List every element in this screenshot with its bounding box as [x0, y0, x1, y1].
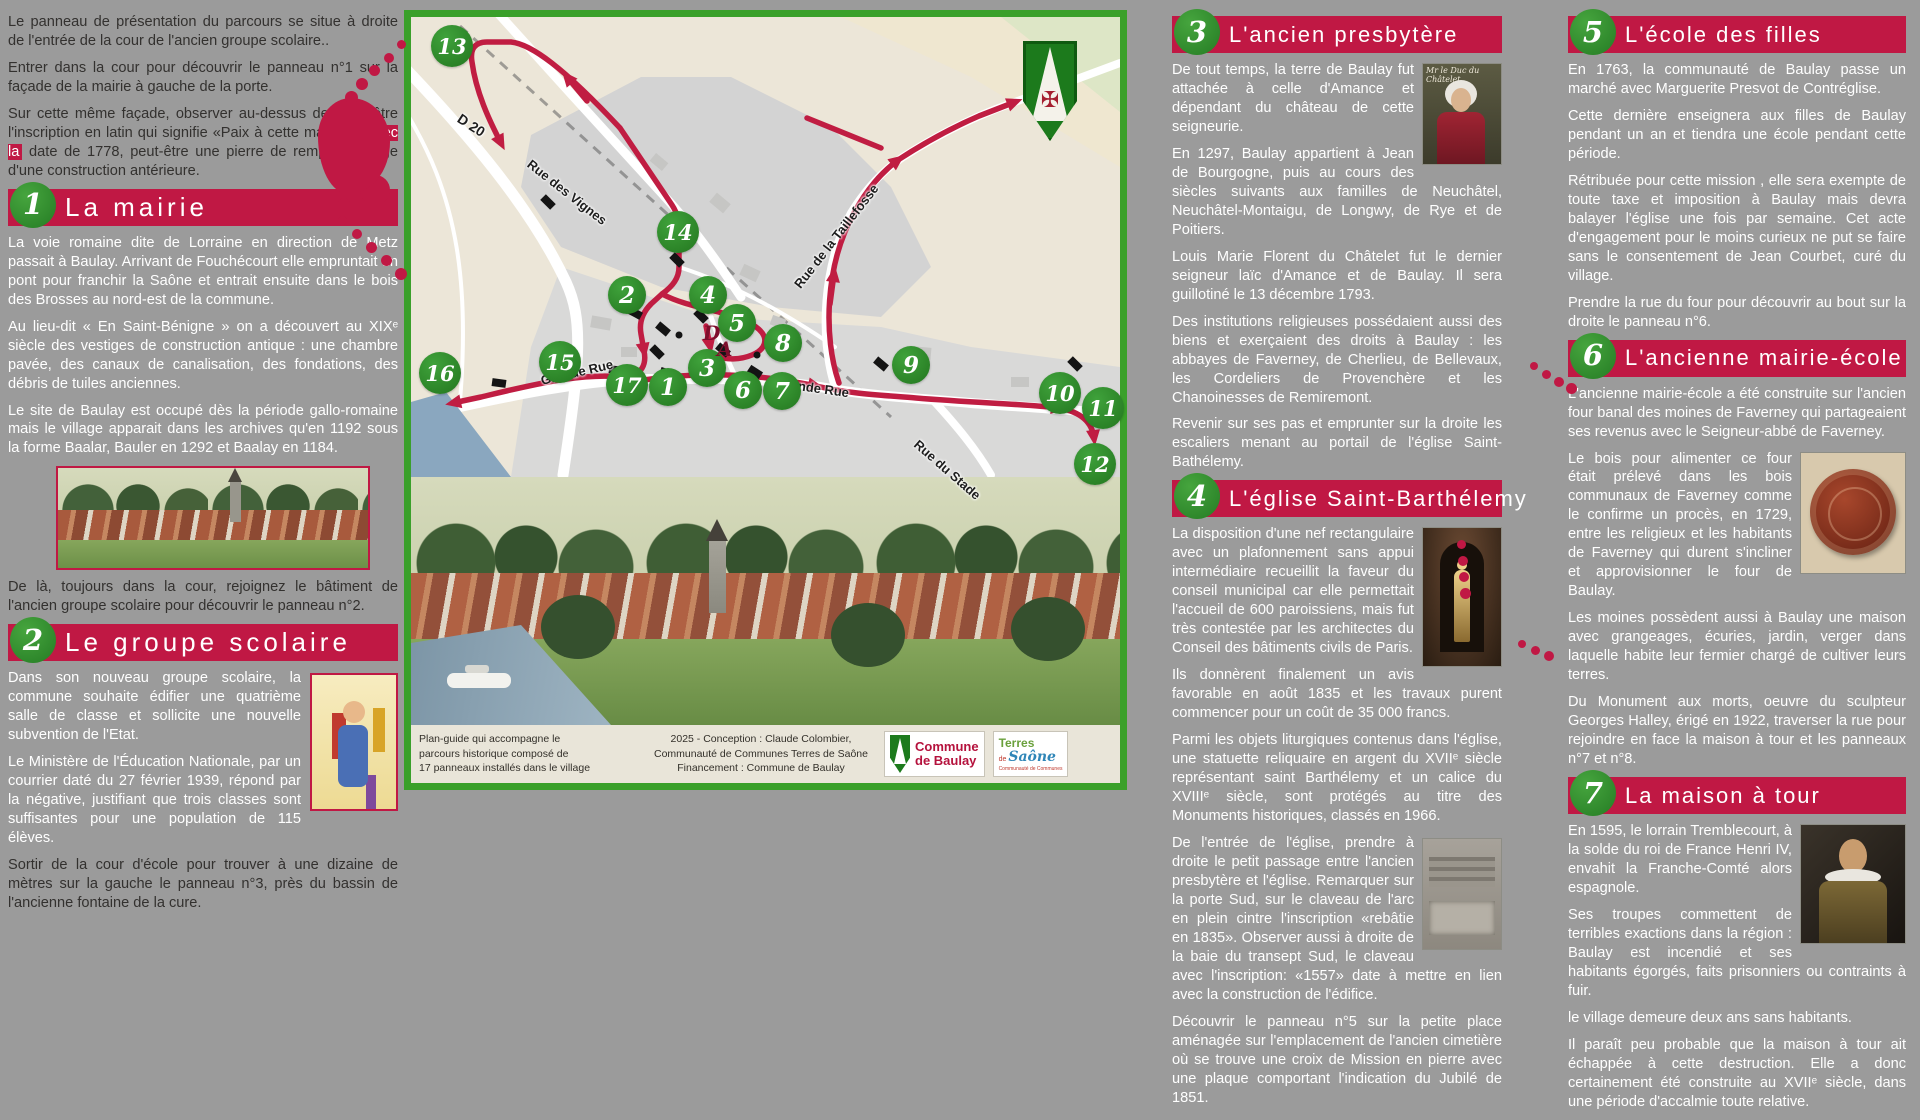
boat-art	[447, 673, 511, 688]
middle-right-column: 3 L'ancien presbytère Mr le Duc du Châte…	[1172, 0, 1502, 1115]
plan-guide-caption: Plan-guide qui accompagne le parcours hi…	[419, 732, 634, 776]
leader-dot	[338, 216, 347, 225]
direction-paragraph: De là, toujours dans la cour, rejoignez …	[8, 578, 398, 616]
leader-dot	[1566, 383, 1577, 394]
commune-shield-icon	[890, 735, 910, 773]
rooftops-art	[58, 510, 368, 544]
panel7-number-badge: 7	[1570, 770, 1616, 816]
panel3-number-badge: 3	[1174, 9, 1220, 55]
panel3-paragraph: Des institutions religieuses possédaient…	[1172, 313, 1502, 408]
leader-dot	[1542, 370, 1551, 379]
leader-dot	[369, 65, 380, 76]
seal-art	[1810, 469, 1896, 555]
panel6-paragraph: L'ancienne mairie-école a été construite…	[1568, 385, 1906, 442]
panel1-title: La mairie	[65, 192, 208, 223]
panel5-number-badge: 5	[1570, 9, 1616, 55]
leader-dot	[384, 53, 394, 63]
panel5-paragraph: Cette dernière enseignera aux filles de …	[1568, 107, 1906, 164]
caption-line: parcours historique composé de	[419, 747, 634, 762]
arrivee-marker: A	[717, 339, 733, 359]
panel5-paragraph: En 1763, la communauté de Baulay passe u…	[1568, 61, 1906, 99]
foreground-tree-art	[831, 603, 905, 667]
panel5-paragraph: Prendre la rue du four pour découvrir au…	[1568, 294, 1906, 332]
terres-de-saone-logo: Terres deSaône Communauté de Communes	[993, 731, 1069, 777]
church-tower-art	[709, 539, 726, 613]
portrait-art	[1437, 112, 1485, 164]
panel6-paragraph: Les moines possèdent aussi à Baulay une …	[1568, 609, 1906, 685]
church-tower-art	[230, 480, 241, 522]
panel4-paragraph: Découvrir le panneau n°5 sur la petite p…	[1172, 1013, 1502, 1108]
panel1-paragraph: La voie romaine dite de Lorraine en dire…	[8, 234, 398, 310]
panel1-paragraph: Le site de Baulay est occupé dès la péri…	[8, 402, 398, 459]
panel4-number-badge: 4	[1174, 473, 1220, 519]
logo-text: Communauté de Communes	[999, 767, 1063, 772]
panel5-title: L'école des filles	[1625, 22, 1822, 48]
map-drawing	[411, 17, 1120, 477]
map-marker-15: 15	[539, 341, 581, 383]
panel7-header: 7 La maison à tour	[1568, 777, 1906, 814]
leader-dot	[338, 198, 350, 210]
caption-line: 17 panneaux installés dans le village	[419, 761, 634, 776]
leader-dot	[345, 91, 358, 104]
panel7-paragraph: le village demeure deux ans sans habitan…	[1568, 1009, 1906, 1028]
intro-paragraph: Le panneau de présentation du parcours s…	[8, 13, 398, 51]
leader-dot	[1544, 651, 1554, 661]
panel5-header: 5 L'école des filles	[1568, 16, 1906, 53]
leader-dot	[1459, 572, 1469, 582]
panel3-title: L'ancien presbytère	[1229, 22, 1458, 48]
direction-paragraph: Sortir de la cour d'école pour trouver à…	[8, 856, 398, 913]
leader-dot	[1554, 377, 1564, 387]
intro-paragraph: Entrer dans la cour pour découvrir le pa…	[8, 59, 398, 97]
leader-dot	[1530, 362, 1538, 370]
panel1-number-badge: 1	[10, 182, 56, 228]
map-marker-1: 1	[649, 368, 687, 406]
leader-dot	[1531, 646, 1540, 655]
map-marker-16: 16	[419, 352, 461, 394]
village-photo	[56, 466, 370, 570]
map-marker-11: 11	[1082, 387, 1124, 429]
leader-dot	[1518, 640, 1526, 648]
map-marker-2: 2	[608, 276, 646, 314]
credit-line: Financement : Commune de Baulay	[646, 761, 876, 776]
map-panel: D 20 Rue des Vignes Rue de la Taillefoss…	[404, 10, 1127, 790]
panel2-title: Le groupe scolaire	[65, 627, 351, 658]
credit-line: Communauté de Communes Terres de Saône	[646, 747, 876, 762]
map-marker-10: 10	[1039, 372, 1081, 414]
map-marker-13: 13	[431, 25, 473, 67]
leader-dot	[356, 78, 368, 90]
tourist-panel-page: Le panneau de présentation du parcours s…	[0, 0, 1920, 806]
panel3-paragraph: Revenir sur ses pas et emprunter sur la …	[1172, 415, 1502, 472]
leader-dot	[352, 229, 362, 239]
commune-de-baulay-logo: Commune de Baulay	[884, 731, 985, 777]
map-marker-7: 7	[763, 372, 801, 410]
credits-caption: 2025 - Conception : Claude Colombier, Co…	[646, 732, 876, 776]
logo-text: de	[999, 756, 1007, 763]
map-marker-17: 17	[606, 364, 648, 406]
panel4-header: 4 L'église Saint-Barthélemy	[1172, 480, 1502, 517]
map-marker-9: 9	[892, 346, 930, 384]
portrait-art	[1839, 839, 1867, 873]
henri-iv-portrait	[1800, 824, 1906, 944]
leader-dot	[1460, 588, 1471, 599]
duc-du-chatelet-portrait: Mr le Duc du Châtelet	[1422, 63, 1502, 165]
panel6-header: 6 L'ancienne mairie-école	[1568, 340, 1906, 377]
map-marker-12: 12	[1074, 443, 1116, 485]
logo-text: Terres	[999, 737, 1035, 749]
map-marker-6: 6	[724, 371, 762, 409]
leader-dot	[381, 255, 392, 266]
panel2-header: 2 Le groupe scolaire	[8, 624, 398, 661]
panel3-header: 3 L'ancien presbytère	[1172, 16, 1502, 53]
map-marker-4: 4	[689, 276, 727, 314]
portrait-art	[1819, 881, 1887, 943]
caption-line: Plan-guide qui accompagne le	[419, 732, 634, 747]
map-marker-14: 14	[657, 211, 699, 253]
panel6-paragraph: Du Monument aux morts, oeuvre du sculpte…	[1568, 693, 1906, 769]
panel2-number-badge: 2	[10, 617, 56, 663]
panel3-paragraph: Louis Marie Florent du Châtelet fut le d…	[1172, 248, 1502, 305]
village-panorama-photo	[411, 477, 1120, 725]
logo-text: Saône	[1008, 749, 1056, 765]
foreground-tree-art	[1011, 597, 1085, 661]
panel1-paragraph: Au lieu-dit « En Saint-Bénigne » on a dé…	[8, 318, 398, 394]
panel4-title: L'église Saint-Barthélemy	[1229, 486, 1528, 512]
panel7-title: La maison à tour	[1625, 783, 1821, 809]
leader-dot	[1457, 540, 1466, 549]
meadow-art	[58, 540, 368, 568]
logo-text: de Baulay	[915, 754, 979, 768]
school-drawing-photo	[310, 673, 398, 811]
credit-line: 2025 - Conception : Claude Colombier,	[646, 732, 876, 747]
panel6-number-badge: 6	[1570, 333, 1616, 379]
panel7-paragraph: Il paraît peu probable que la maison à t…	[1568, 1036, 1906, 1112]
red-cross-charge: ✠	[1023, 89, 1077, 111]
portrait-art	[1451, 88, 1471, 112]
treeline-art	[411, 511, 1120, 581]
leader-dot	[366, 242, 377, 253]
far-right-column: 5 L'école des filles En 1763, la communa…	[1568, 0, 1906, 1120]
panel5-paragraph: Rétribuée pour cette mission , elle sera…	[1568, 172, 1906, 286]
village-map: D 20 Rue des Vignes Rue de la Taillefoss…	[411, 17, 1120, 477]
panel6-title: L'ancienne mairie-école	[1625, 345, 1903, 371]
wax-seal-photo	[1800, 452, 1906, 574]
panel4-paragraph: Parmi les objets liturgiques contenus da…	[1172, 731, 1502, 826]
caption-bar: Plan-guide qui accompagne le parcours hi…	[411, 725, 1120, 783]
leader-dot	[395, 268, 407, 280]
stone-inscription-photo	[1422, 838, 1502, 950]
foreground-tree-art	[541, 595, 615, 659]
panel4-paragraph: Ils donnèrent finalement un avis favorab…	[1172, 666, 1502, 723]
logo-text: Commune	[915, 740, 979, 754]
leader-dot	[1458, 556, 1468, 566]
leader-dot	[397, 40, 406, 49]
map-marker-8: 8	[764, 324, 802, 362]
